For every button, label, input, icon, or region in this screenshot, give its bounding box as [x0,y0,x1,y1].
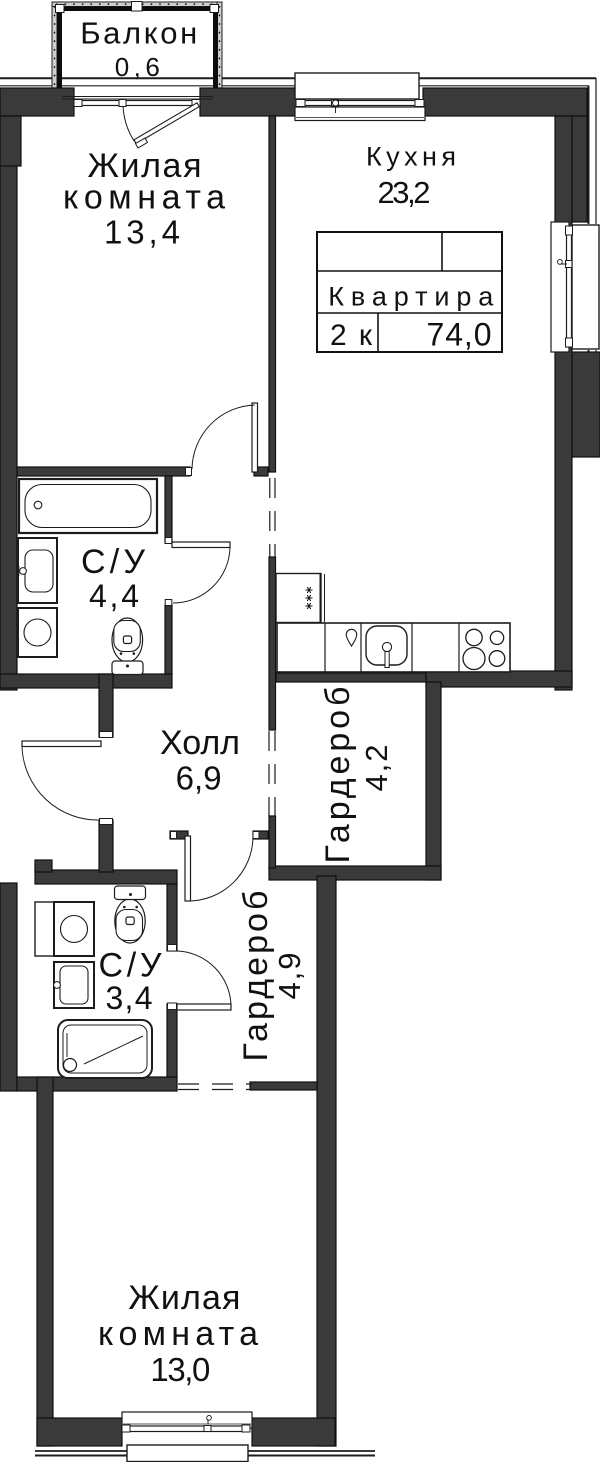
svg-text:Гардероб: Гардероб [319,687,357,864]
svg-text:13,0: 13,0 [150,1351,210,1388]
svg-text:Кухня: Кухня [366,142,456,172]
svg-text:Гардероб: Гардероб [237,891,275,1062]
svg-text:Балкон: Балкон [80,16,197,51]
svg-text:Холл: Холл [160,724,240,762]
svg-text:3,4: 3,4 [106,980,153,1016]
svg-text:23,2: 23,2 [378,175,431,210]
svg-text:С/У: С/У [99,947,162,985]
svg-text:4,9: 4,9 [272,953,307,1000]
svg-text:Жилая: Жилая [128,1279,240,1317]
svg-text:4,4: 4,4 [89,578,139,614]
svg-text:6,9: 6,9 [176,760,222,797]
svg-text:4,2: 4,2 [359,745,394,792]
svg-text:74,0: 74,0 [427,317,492,353]
svg-text:С/У: С/У [81,543,145,581]
svg-text:0,6: 0,6 [115,52,160,82]
svg-text:13,4: 13,4 [104,214,180,251]
